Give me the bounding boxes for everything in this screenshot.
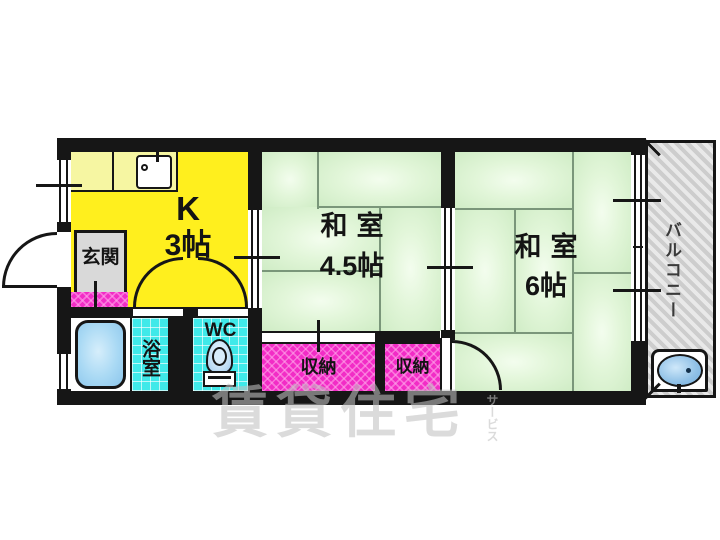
wall xyxy=(130,318,132,391)
sink-icon xyxy=(136,155,172,189)
wash-basin-bowl-icon xyxy=(657,354,703,387)
dimension-tick xyxy=(427,266,473,269)
floor-plan: K 3帖 和室 4.5帖 和室 6帖 玄関 浴室 WC 収納 収納 バルコニー … xyxy=(0,0,720,540)
entrance-door-opening xyxy=(57,232,71,287)
wash-basin-tap xyxy=(677,384,681,393)
tatami-line xyxy=(317,152,319,209)
wall xyxy=(183,307,198,318)
kitchen-type-label: K xyxy=(166,192,210,225)
dimension-tick xyxy=(234,256,280,259)
entrance-label: 玄関 xyxy=(74,248,127,267)
entrance-door-arc xyxy=(2,232,57,287)
window-symbol xyxy=(59,160,68,222)
washitsu6-type-label: 和室 xyxy=(488,234,604,261)
wall xyxy=(631,341,645,405)
wall xyxy=(57,222,71,232)
dimension-tick xyxy=(317,320,320,352)
sliding-door-divider xyxy=(633,246,643,248)
balcony-label: バルコニー xyxy=(663,212,680,330)
sliding-door-symbol xyxy=(444,208,452,330)
dimension-tick xyxy=(613,199,661,202)
wall xyxy=(57,138,646,152)
watermark-text: 賃貸住宅 xyxy=(212,385,468,441)
washitsu45-size-label: 4.5帖 xyxy=(294,253,410,280)
wall xyxy=(248,152,262,210)
closet2-label: 収納 xyxy=(385,358,440,375)
counter-divider xyxy=(112,152,114,192)
faucet-icon xyxy=(156,149,159,162)
balcony-sliding-door-symbol xyxy=(634,155,642,341)
sink-drain-icon xyxy=(141,164,148,171)
sliding-door-symbol xyxy=(251,210,259,308)
window-symbol xyxy=(59,354,68,389)
wall xyxy=(441,152,455,208)
wash-basin-drain-dot xyxy=(686,368,691,373)
entrance-step xyxy=(71,292,128,307)
toilet-tank-line xyxy=(208,376,231,379)
bath-label: 浴室 xyxy=(140,330,159,386)
wall xyxy=(57,389,71,405)
dimension-tick xyxy=(613,289,661,292)
tatami-mat xyxy=(455,209,515,333)
washitsu45-type-label: 和室 xyxy=(294,213,410,240)
dimension-tick xyxy=(94,281,97,311)
wall xyxy=(168,318,193,391)
wc-door-opening xyxy=(198,307,248,318)
tatami-mat xyxy=(318,152,441,207)
washitsu6-size-label: 6帖 xyxy=(488,273,604,300)
closet1-label: 収納 xyxy=(262,358,375,376)
bath-door-opening xyxy=(133,307,183,318)
tatami-line xyxy=(514,209,516,333)
tatami-line xyxy=(455,332,573,334)
wall xyxy=(57,138,71,160)
wall xyxy=(57,287,71,354)
bathtub-icon xyxy=(75,320,126,389)
toilet-seat-icon xyxy=(212,347,227,366)
entrance-door-leaf xyxy=(2,285,57,288)
wall xyxy=(385,331,440,344)
wall xyxy=(248,308,262,391)
watermark-subtext: サービス xyxy=(486,394,498,442)
tatami-mat xyxy=(262,152,318,207)
tatami-mat xyxy=(455,152,573,209)
dimension-tick xyxy=(36,184,82,187)
kitchen-size-label: 3帖 xyxy=(143,231,233,261)
wc-label: WC xyxy=(193,321,248,340)
